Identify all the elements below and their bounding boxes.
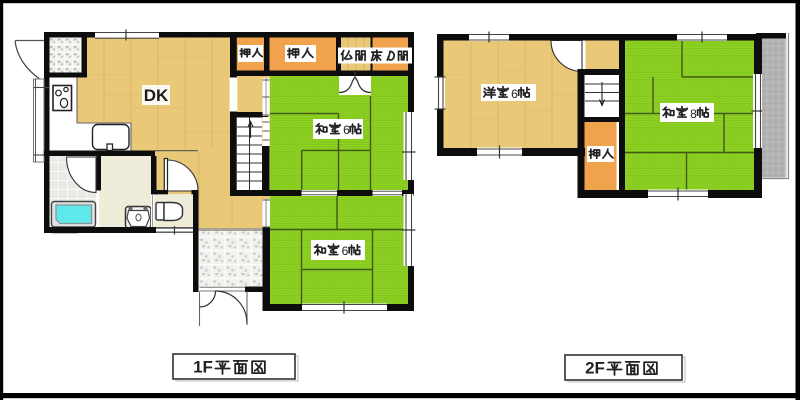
- svg-text:6: 6: [511, 87, 518, 101]
- svg-text:DK: DK: [144, 86, 169, 105]
- svg-text:2F: 2F: [585, 359, 605, 378]
- svg-text:6: 6: [342, 244, 349, 258]
- svg-text:1F: 1F: [193, 358, 213, 377]
- svg-text:6: 6: [343, 123, 350, 137]
- svg-text:8: 8: [690, 107, 697, 121]
